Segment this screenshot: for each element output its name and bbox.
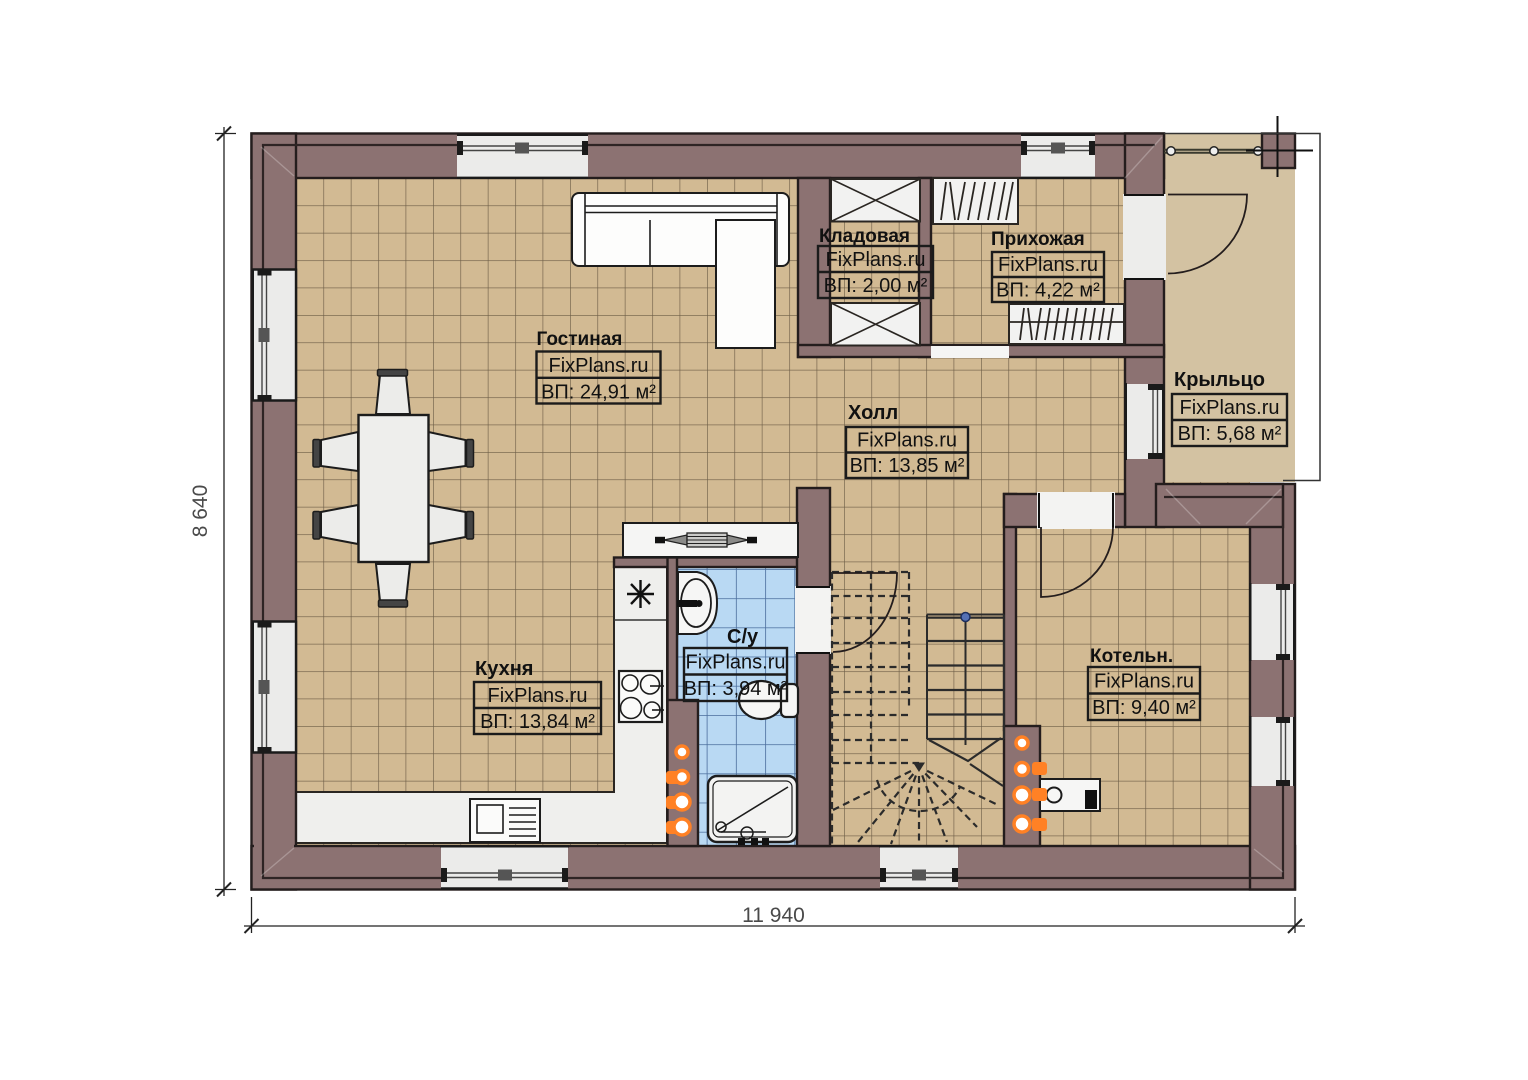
svg-text:FixPlans.ru: FixPlans.ru xyxy=(1179,397,1279,419)
svg-text:FixPlans.ru: FixPlans.ru xyxy=(998,254,1098,276)
svg-text:ВП: 3,94 м²: ВП: 3,94 м² xyxy=(684,678,788,700)
svg-text:Холл: Холл xyxy=(848,402,898,424)
svg-text:ВП: 9,40 м²: ВП: 9,40 м² xyxy=(1092,697,1196,719)
svg-text:FixPlans.ru: FixPlans.ru xyxy=(685,652,785,674)
svg-text:8 640: 8 640 xyxy=(189,485,212,538)
svg-text:Котельн.: Котельн. xyxy=(1090,646,1173,667)
svg-text:ВП: 13,84 м²: ВП: 13,84 м² xyxy=(480,711,595,733)
svg-text:ВП: 2,00 м²: ВП: 2,00 м² xyxy=(824,275,928,297)
svg-text:ВП: 4,22 м²: ВП: 4,22 м² xyxy=(996,280,1100,302)
svg-text:Крыльцо: Крыльцо xyxy=(1174,369,1265,391)
svg-text:FixPlans.ru: FixPlans.ru xyxy=(548,355,648,377)
svg-text:Кухня: Кухня xyxy=(475,658,533,680)
svg-text:ВП: 13,85 м²: ВП: 13,85 м² xyxy=(850,455,965,477)
svg-text:ВП: 24,91 м²: ВП: 24,91 м² xyxy=(541,381,656,403)
svg-text:FixPlans.ru: FixPlans.ru xyxy=(1094,671,1194,693)
svg-text:Кладовая: Кладовая xyxy=(819,226,910,247)
svg-text:С/у: С/у xyxy=(727,626,759,648)
svg-text:ВП: 5,68 м²: ВП: 5,68 м² xyxy=(1178,423,1282,445)
svg-text:Гостиная: Гостиная xyxy=(537,329,623,350)
svg-text:11 940: 11 940 xyxy=(742,904,805,927)
svg-text:FixPlans.ru: FixPlans.ru xyxy=(857,430,957,452)
svg-text:Прихожая: Прихожая xyxy=(991,229,1085,250)
svg-text:FixPlans.ru: FixPlans.ru xyxy=(487,685,587,707)
svg-text:FixPlans.ru: FixPlans.ru xyxy=(825,249,925,271)
